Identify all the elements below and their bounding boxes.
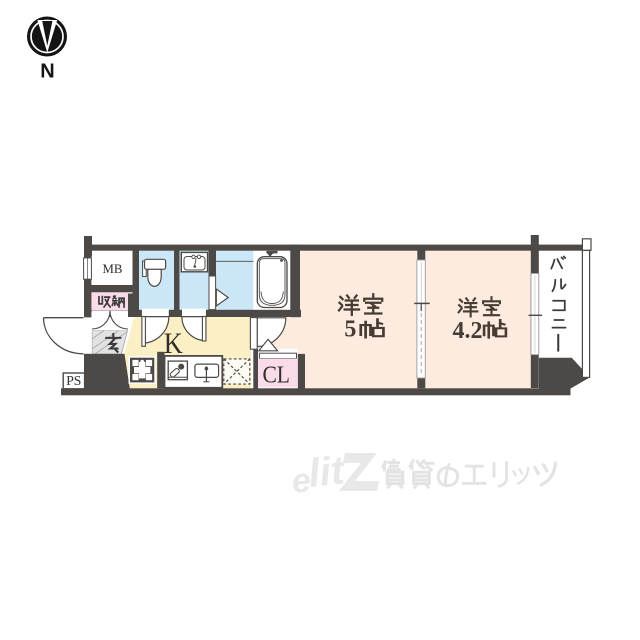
svg-text:MB: MB [103, 262, 123, 276]
svg-text:5: 5 [344, 316, 356, 342]
svg-text:N: N [40, 61, 54, 83]
svg-text:4.2: 4.2 [453, 318, 483, 344]
svg-text:PS: PS [66, 373, 81, 388]
svg-text:K: K [164, 327, 183, 360]
svg-text:CL: CL [262, 362, 290, 389]
